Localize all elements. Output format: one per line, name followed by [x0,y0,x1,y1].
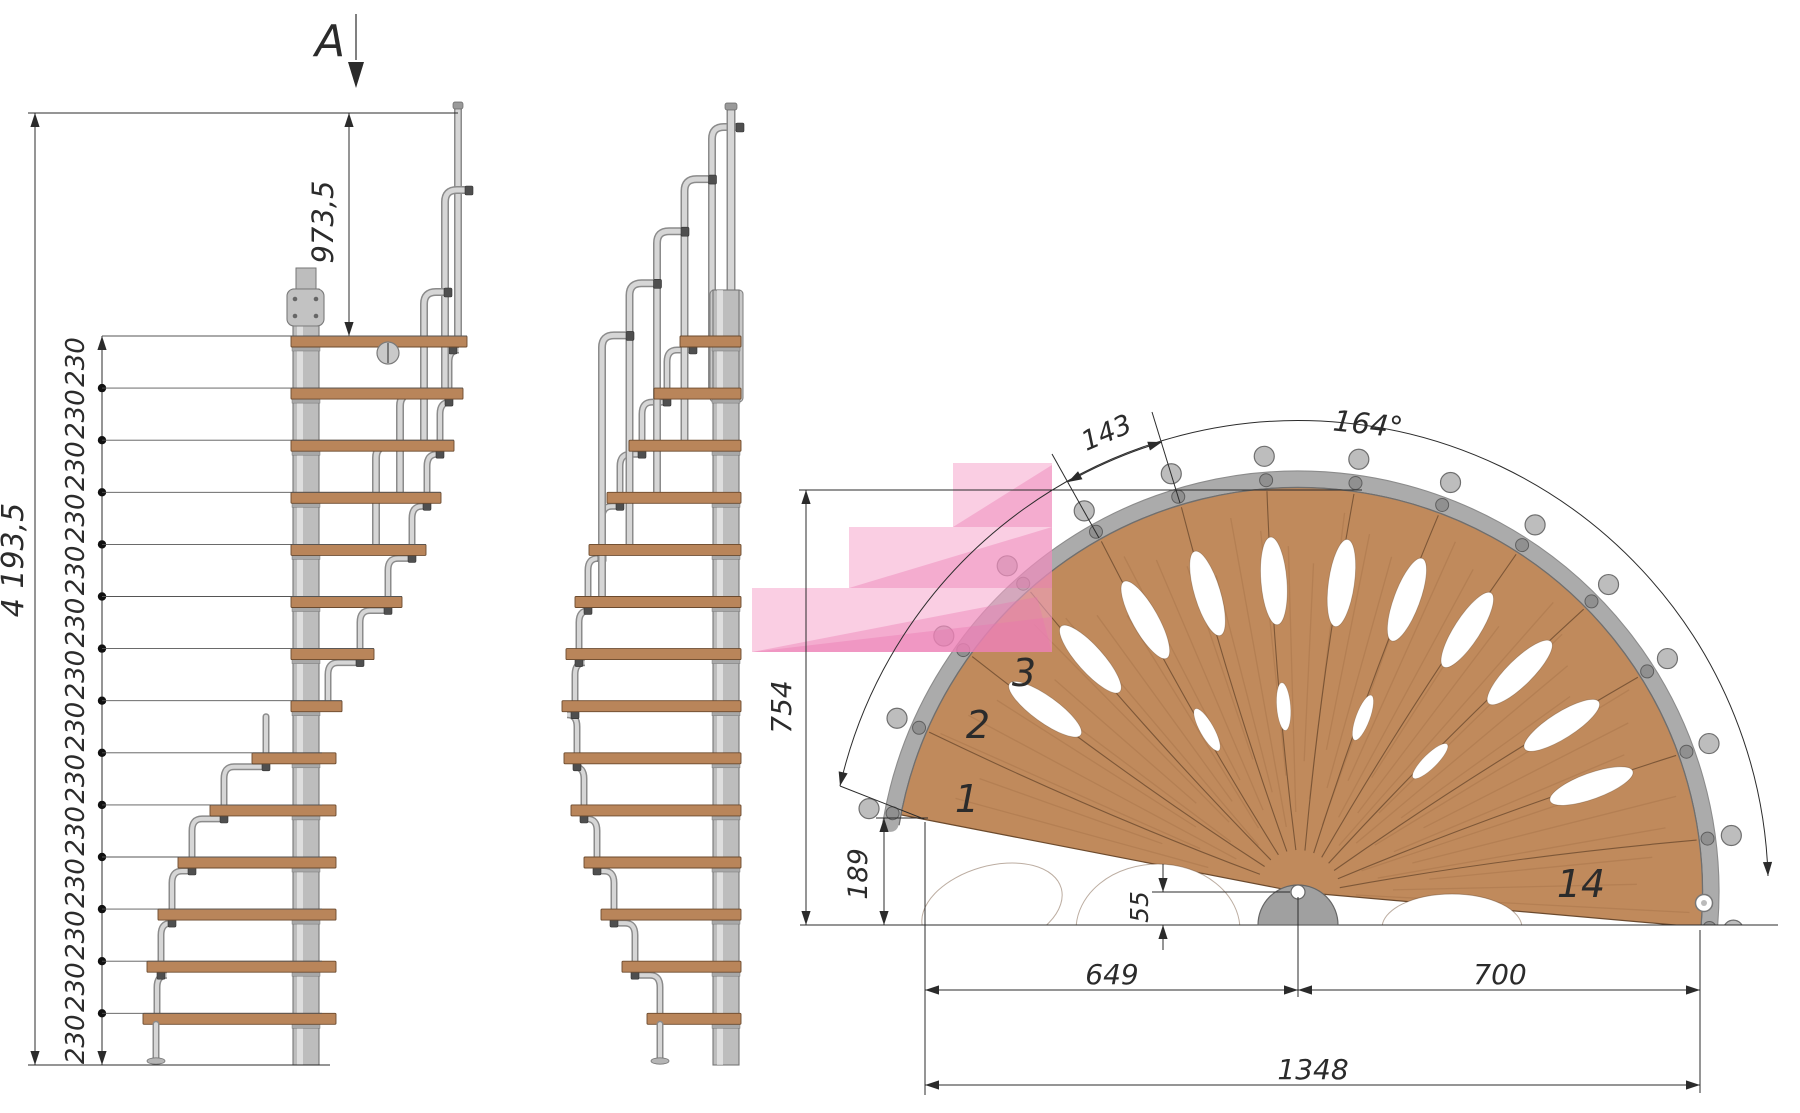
leg-foot [147,1058,165,1064]
tread [291,440,454,451]
baluster-rail-inner [427,454,440,492]
column-ring [292,712,320,716]
baluster-connector [1349,477,1362,490]
tread-spacing-arc [1068,442,1162,482]
step-rise-label: 230 [61,702,91,752]
column-stub [296,268,316,292]
step-number-14: 14 [1557,862,1605,906]
baluster-rail-inner [584,819,597,857]
baluster-knob [1599,575,1619,595]
baluster-connector [1260,474,1273,487]
tread [291,388,463,399]
dim-arrow [1686,985,1700,994]
step-rise-label: 230 [61,337,91,387]
tread [575,597,741,608]
end-baluster-foot-pin [1701,900,1707,906]
baluster-knob [1723,920,1743,940]
dim-arrow [801,911,810,925]
tread [147,961,336,972]
tread [178,857,336,868]
tread [680,336,741,347]
column-ring [712,451,740,455]
step-rise-label: 230 [61,806,91,856]
section-label: A [312,16,345,67]
step-rise-label: 230 [61,441,91,491]
rail-clamp [736,123,744,132]
step-rise-label: 230 [61,858,91,908]
baluster-knob [1525,515,1545,535]
tread [629,440,741,451]
baluster-knob [1657,649,1677,669]
tread [252,753,336,764]
tread [291,336,467,347]
dim-arrow [97,336,106,350]
rail-clamp [444,288,452,297]
bracket-hole [314,314,319,319]
dim-arrow [1686,1080,1700,1089]
baluster-rail [388,558,412,596]
column-highlight [717,290,723,1065]
column-ring [292,972,320,976]
tread [291,701,342,712]
rail-clamp [681,227,689,236]
tread [564,753,741,764]
column-ring [712,399,740,403]
baluster-rail-inner [161,923,172,961]
tread [601,909,741,920]
baluster-connector [1641,665,1654,678]
column-ring [712,1024,740,1028]
step-rise-label: 230 [61,389,91,439]
column-ring [712,816,740,820]
dim-arrow [97,1051,106,1065]
dim-arrow [1284,985,1298,994]
column-ring [292,608,320,612]
dim-arrow [1763,862,1773,876]
front-elevation-view [562,103,744,1065]
baluster-knob [1699,734,1719,754]
tread [566,649,741,660]
baluster-knob [859,799,879,819]
tread [562,701,741,712]
left-width-label: 649 [1085,958,1138,991]
section-arrow [348,62,364,88]
tread [589,544,741,555]
bracket-hole [293,314,298,319]
step-rise-label: 230 [61,754,91,804]
bracket-hole [314,297,319,302]
tread [607,492,741,503]
baluster-rail [360,611,388,649]
column-ring [712,972,740,976]
dim-arrow [1158,925,1167,939]
baluster-rail [635,975,660,1013]
column-ring [712,555,740,559]
entry-offset-label: 189 [843,848,874,900]
tread [654,388,741,399]
top-rise-label: 973,5 [306,180,340,263]
column-ring [292,920,320,924]
tread-spacing-label: 143 [1077,409,1137,458]
baluster-knob [1721,826,1741,846]
column-highlight [297,289,303,1065]
step-rise-label: 230 [61,493,91,543]
dim-arrow [925,985,939,994]
column-ring [712,868,740,872]
center-offset-label: 55 [1125,891,1154,923]
dim-arrow [344,113,353,127]
baluster-connector [1680,745,1693,758]
right-width-label: 700 [1473,958,1526,991]
baluster-connector [1703,921,1716,934]
column-ring [292,399,320,403]
baluster-rail [224,767,266,805]
tread [571,805,741,816]
total-height-label: 4 193,5 [0,503,31,618]
column-ring [292,816,320,820]
baluster-knob [887,708,907,728]
drawing-canvas: 12314A4 193,5973,52302302302302302302302… [0,0,1800,1113]
central-column [293,289,319,1065]
baluster-knob [1441,472,1461,492]
baluster-rail [667,350,693,388]
rotation-angle-label: 164° [1332,403,1405,444]
staircase-technical-drawing: 12314A4 193,5973,52302302302302302302302… [0,0,1800,1113]
dim-arrow [801,490,810,504]
center-post-hole [1291,885,1305,899]
central-column [713,290,739,1065]
dim-arrow [879,911,888,925]
tread [584,857,741,868]
bracket-hole [293,297,298,302]
total-width-label: 1348 [1277,1053,1348,1086]
baluster-connector [1701,832,1714,845]
dim-arrow [836,771,848,787]
scallop-cutout [1382,894,1522,962]
baluster-connector [1585,595,1598,608]
baluster-connector [913,721,926,734]
column-ring [292,347,320,351]
column-ring [712,764,740,768]
step-number-1: 1 [955,777,979,821]
step-number-3: 3 [1012,651,1036,695]
column-ring [712,347,740,351]
column-ring [712,660,740,664]
dim-arrow [925,1080,939,1089]
baluster-connector [1436,498,1449,511]
wall-bracket [287,289,324,326]
step-number-2: 2 [966,703,990,747]
tread [291,597,402,608]
tread [143,1013,336,1024]
leg-foot [651,1058,669,1064]
column-ring [712,608,740,612]
baluster-rail [328,663,360,701]
post-cap [453,102,463,109]
column-ring [292,764,320,768]
scallop-cutout [911,848,1073,968]
highlight-overlay [752,463,1052,652]
column-ring [712,712,740,716]
baluster-rail-inner [224,767,266,805]
step-rise-label: 230 [61,1014,91,1064]
column-ring [292,1024,320,1028]
dim-line [1152,412,1180,503]
rail-clamp [654,279,662,288]
baluster-rail [192,819,224,857]
baluster-knob [1349,449,1369,469]
column-ring [292,451,320,455]
step-rise-label: 230 [61,910,91,960]
step-rise-label: 230 [61,598,91,648]
baluster-knob [1254,446,1274,466]
tread [291,649,374,660]
column-ring [712,920,740,924]
dim-arrow [344,322,353,336]
tread [291,492,441,503]
step-rise-label: 230 [61,962,91,1012]
column-ring [292,555,320,559]
rail-clamp [709,175,717,184]
tread [291,544,426,555]
rail-clamp [626,331,634,340]
rail-clamp [465,186,473,195]
column-ring [292,503,320,507]
tread [622,961,741,972]
baluster-connector [1516,539,1529,552]
dim-arrow [30,113,39,127]
step-rise-label: 230 [61,546,91,596]
dim-line [1052,454,1099,538]
dim-arrow [30,1051,39,1065]
column-ring [292,660,320,664]
tread [210,805,336,816]
column-ring [292,868,320,872]
plan-height-label: 754 [765,680,798,733]
step-rise-label: 230 [61,650,91,700]
column-ring [712,503,740,507]
dim-arrow [1298,985,1312,994]
pole-cap [725,103,737,110]
tread [158,909,336,920]
